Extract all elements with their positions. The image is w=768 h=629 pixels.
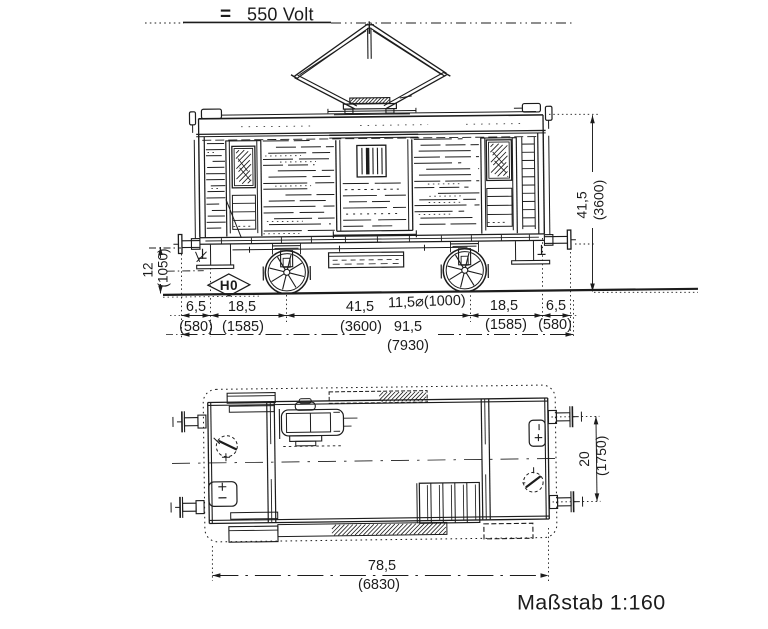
svg-text:91,5: 91,5 — [394, 319, 422, 335]
svg-text:=: = — [220, 4, 231, 25]
svg-text:(1750): (1750) — [593, 436, 610, 477]
svg-text:(7930): (7930) — [387, 338, 429, 354]
svg-text:(580): (580) — [538, 317, 572, 333]
svg-text:18,5: 18,5 — [228, 299, 256, 315]
svg-text:6,5: 6,5 — [186, 299, 206, 315]
svg-text:20: 20 — [576, 451, 592, 467]
svg-text:6,5: 6,5 — [546, 298, 566, 314]
svg-text:18,5: 18,5 — [490, 298, 518, 314]
svg-text:12: 12 — [141, 262, 156, 277]
svg-text:(3600): (3600) — [591, 180, 607, 220]
svg-text:(580): (580) — [179, 319, 213, 335]
svg-text:41,5: 41,5 — [574, 191, 590, 218]
svg-text:78,5: 78,5 — [368, 558, 396, 574]
svg-text:(6830): (6830) — [358, 577, 400, 593]
svg-text:(1585): (1585) — [222, 319, 264, 335]
svg-text:Maßstab 1:160: Maßstab 1:160 — [517, 591, 666, 615]
svg-text:41,5: 41,5 — [346, 299, 374, 315]
svg-text:(1050): (1050) — [156, 248, 171, 287]
svg-text:(1585): (1585) — [485, 317, 527, 333]
svg-text:(3600): (3600) — [340, 319, 382, 335]
svg-text:H0: H0 — [220, 278, 238, 293]
svg-text:11,5⌀(1000): 11,5⌀(1000) — [388, 293, 466, 312]
svg-text:550 Volt: 550 Volt — [247, 5, 314, 25]
